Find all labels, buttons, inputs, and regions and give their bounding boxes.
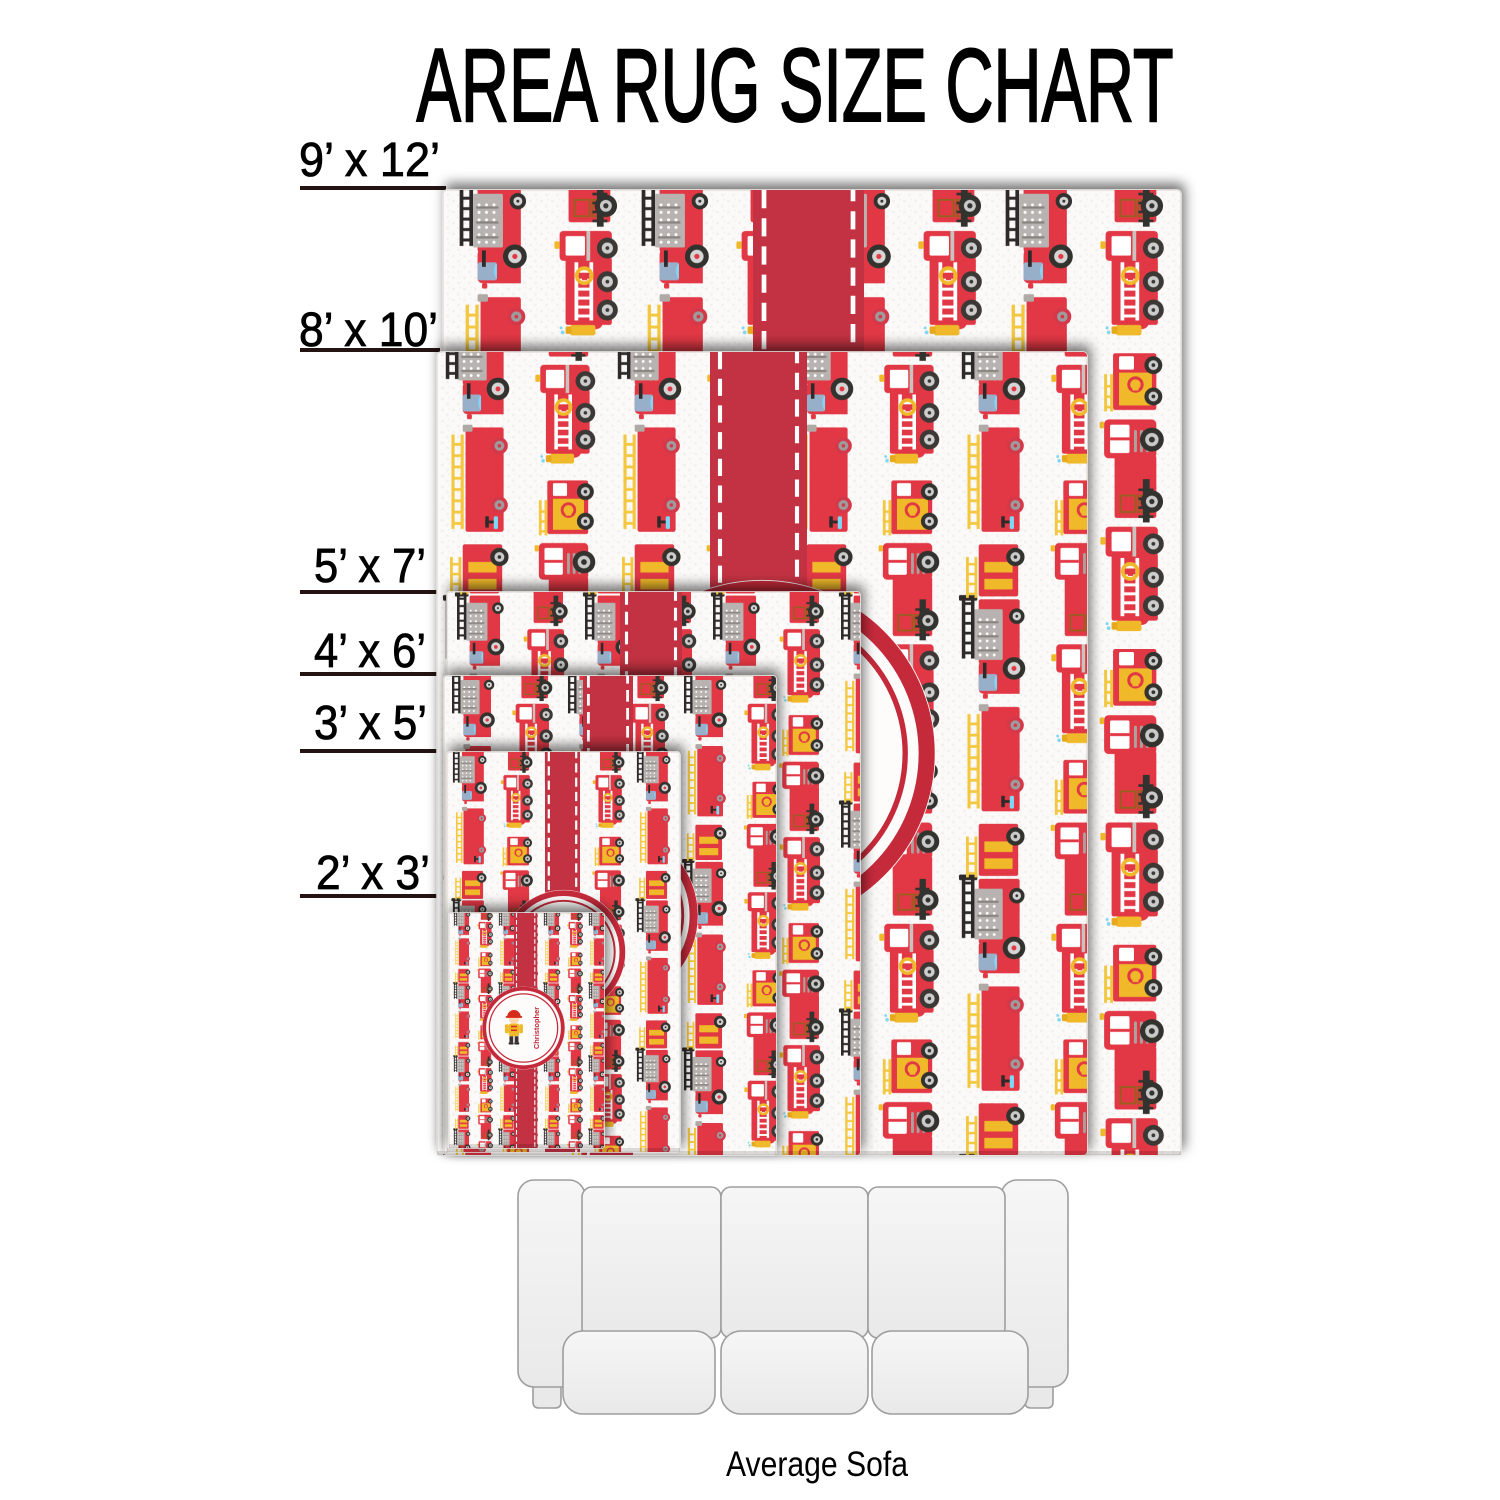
svg-text:AREA RUG SIZE CHART: AREA RUG SIZE CHART (417, 28, 1174, 144)
svg-text:3’ x 5’: 3’ x 5’ (314, 697, 427, 750)
svg-text:5’ x 7’: 5’ x 7’ (314, 540, 426, 593)
svg-text:2’ x 3’: 2’ x 3’ (316, 847, 430, 900)
svg-text:Average Sofa: Average Sofa (726, 1445, 908, 1484)
svg-text:4’ x 6’: 4’ x 6’ (314, 625, 426, 678)
svg-text:9’ x 12’: 9’ x 12’ (299, 134, 440, 187)
